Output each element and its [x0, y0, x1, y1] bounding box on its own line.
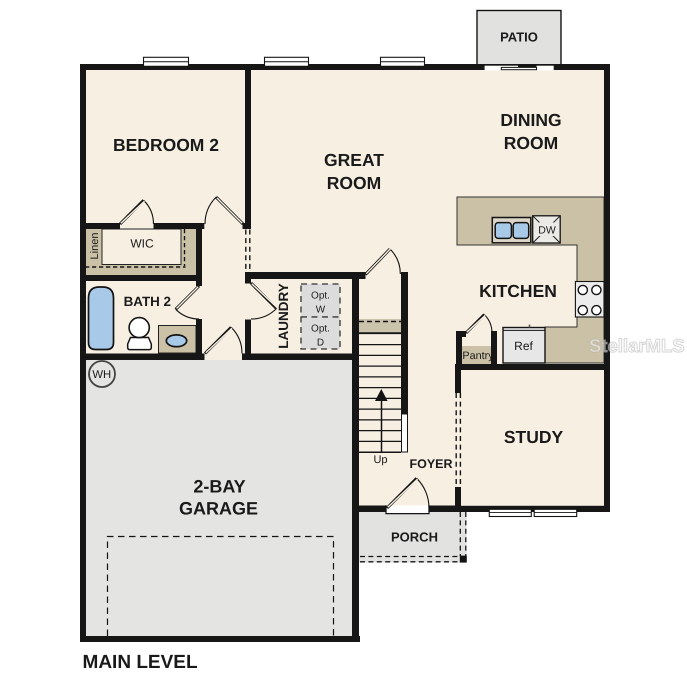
svg-text:MAIN LEVEL: MAIN LEVEL	[83, 652, 198, 673]
svg-text:Linen: Linen	[89, 233, 101, 260]
svg-text:StellarMLS: StellarMLS	[589, 335, 685, 356]
svg-text:GREAT: GREAT	[324, 150, 384, 170]
svg-text:PATIO: PATIO	[500, 30, 538, 45]
svg-text:DINING: DINING	[500, 110, 561, 130]
svg-text:Opt.: Opt.	[311, 324, 330, 335]
svg-text:ROOM: ROOM	[504, 133, 558, 153]
svg-text:Up: Up	[373, 454, 387, 466]
svg-text:BATH 2: BATH 2	[124, 294, 171, 309]
svg-text:Pantry: Pantry	[462, 350, 494, 362]
svg-text:LAUNDRY: LAUNDRY	[276, 283, 291, 349]
svg-text:D: D	[317, 338, 324, 349]
svg-text:WIC: WIC	[130, 237, 154, 251]
svg-text:Ref: Ref	[514, 339, 533, 353]
svg-text:PORCH: PORCH	[391, 530, 438, 545]
svg-text:BEDROOM 2: BEDROOM 2	[113, 135, 219, 155]
svg-text:GARAGE: GARAGE	[179, 499, 258, 519]
svg-text:ROOM: ROOM	[327, 173, 381, 193]
svg-text:FOYER: FOYER	[409, 457, 452, 471]
svg-text:DW: DW	[538, 225, 556, 237]
svg-text:KITCHEN: KITCHEN	[479, 281, 557, 301]
svg-text:Opt.: Opt.	[311, 291, 330, 302]
svg-text:STUDY: STUDY	[504, 427, 564, 447]
svg-text:WH: WH	[92, 369, 111, 381]
svg-text:2-BAY: 2-BAY	[193, 477, 245, 497]
svg-text:W: W	[316, 305, 326, 316]
